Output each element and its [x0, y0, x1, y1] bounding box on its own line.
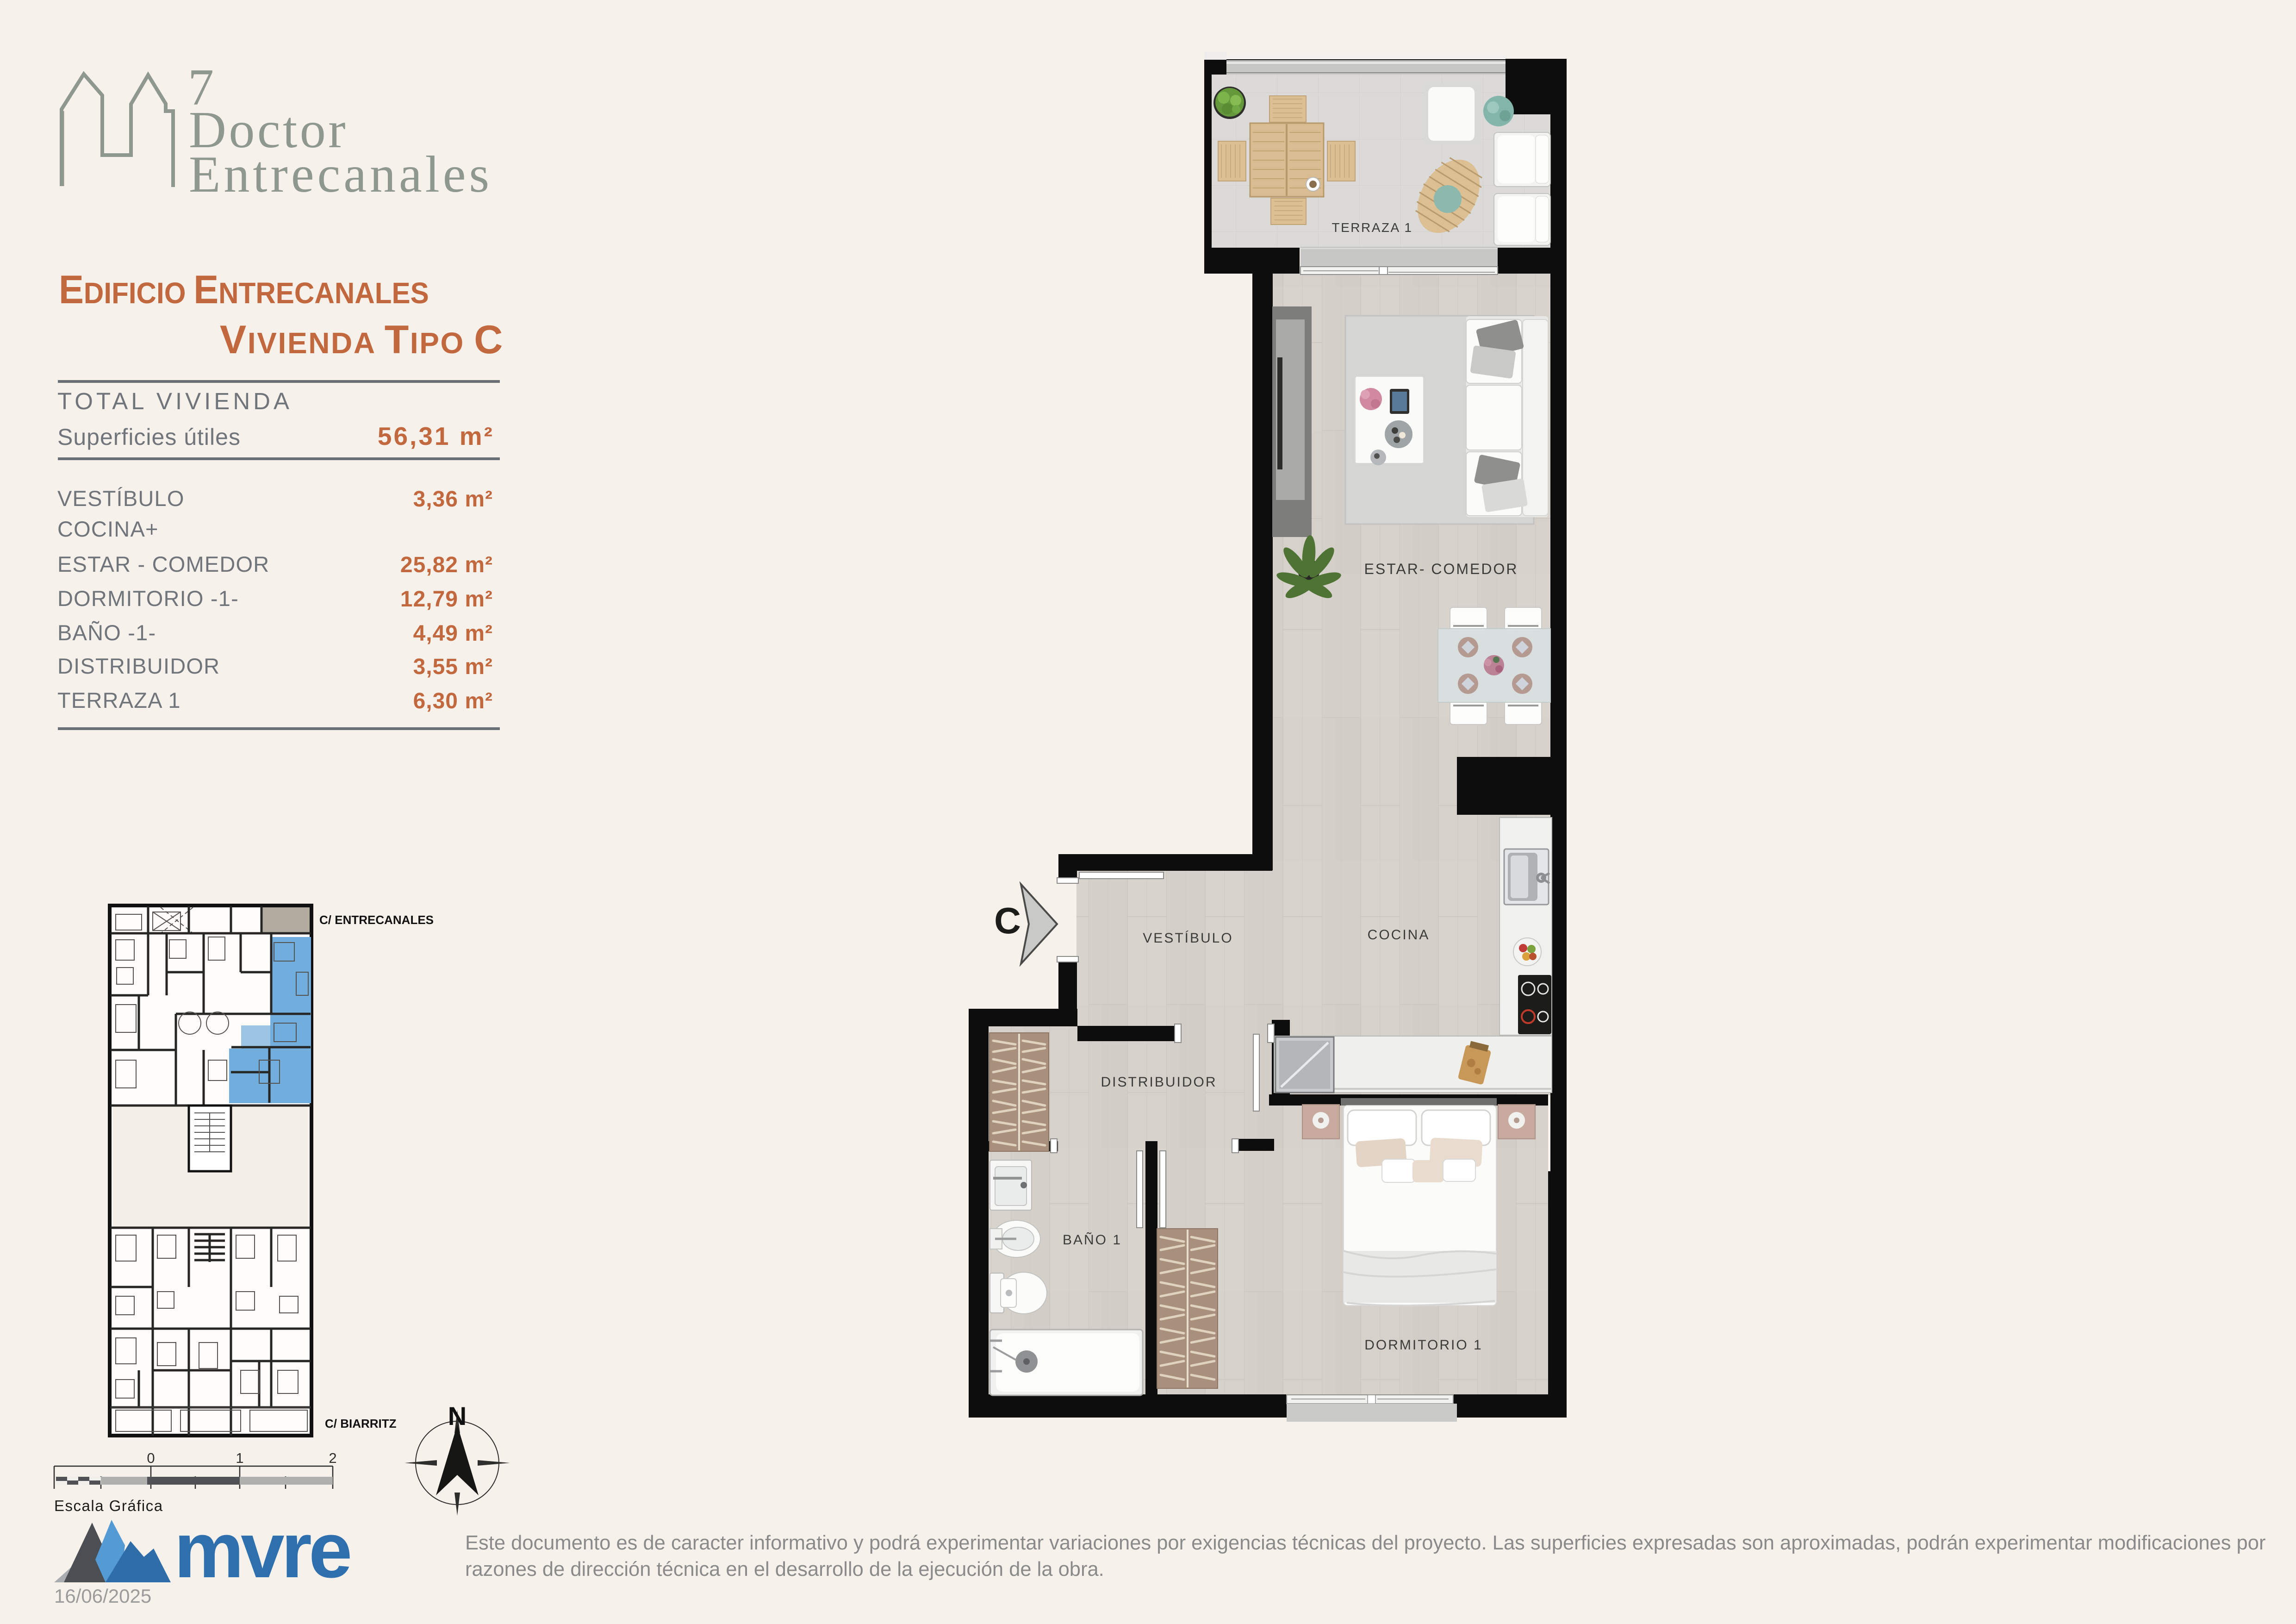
svg-text:BAÑO 1: BAÑO 1	[1063, 1232, 1122, 1248]
svg-text:C/ BIARRITZ: C/ BIARRITZ	[325, 1417, 397, 1430]
svg-text:C: C	[994, 900, 1021, 941]
svg-text:ESTAR- COMEDOR: ESTAR- COMEDOR	[1364, 561, 1518, 577]
svg-text:VESTÍBULO: VESTÍBULO	[1143, 931, 1233, 946]
svg-text:C/ ENTRECANALES: C/ ENTRECANALES	[319, 913, 434, 927]
svg-text:mvre: mvre	[174, 1509, 350, 1593]
svg-text:N: N	[448, 1401, 467, 1430]
svg-text:DORMITORIO 1: DORMITORIO 1	[1364, 1337, 1482, 1353]
svg-text:DISTRIBUIDOR: DISTRIBUIDOR	[1101, 1074, 1217, 1090]
svg-text:0: 0	[147, 1450, 155, 1466]
svg-text:2: 2	[329, 1450, 336, 1466]
svg-text:COCINA: COCINA	[1368, 927, 1430, 943]
svg-text:1: 1	[236, 1450, 243, 1466]
svg-text:TERRAZA 1: TERRAZA 1	[1332, 220, 1413, 235]
